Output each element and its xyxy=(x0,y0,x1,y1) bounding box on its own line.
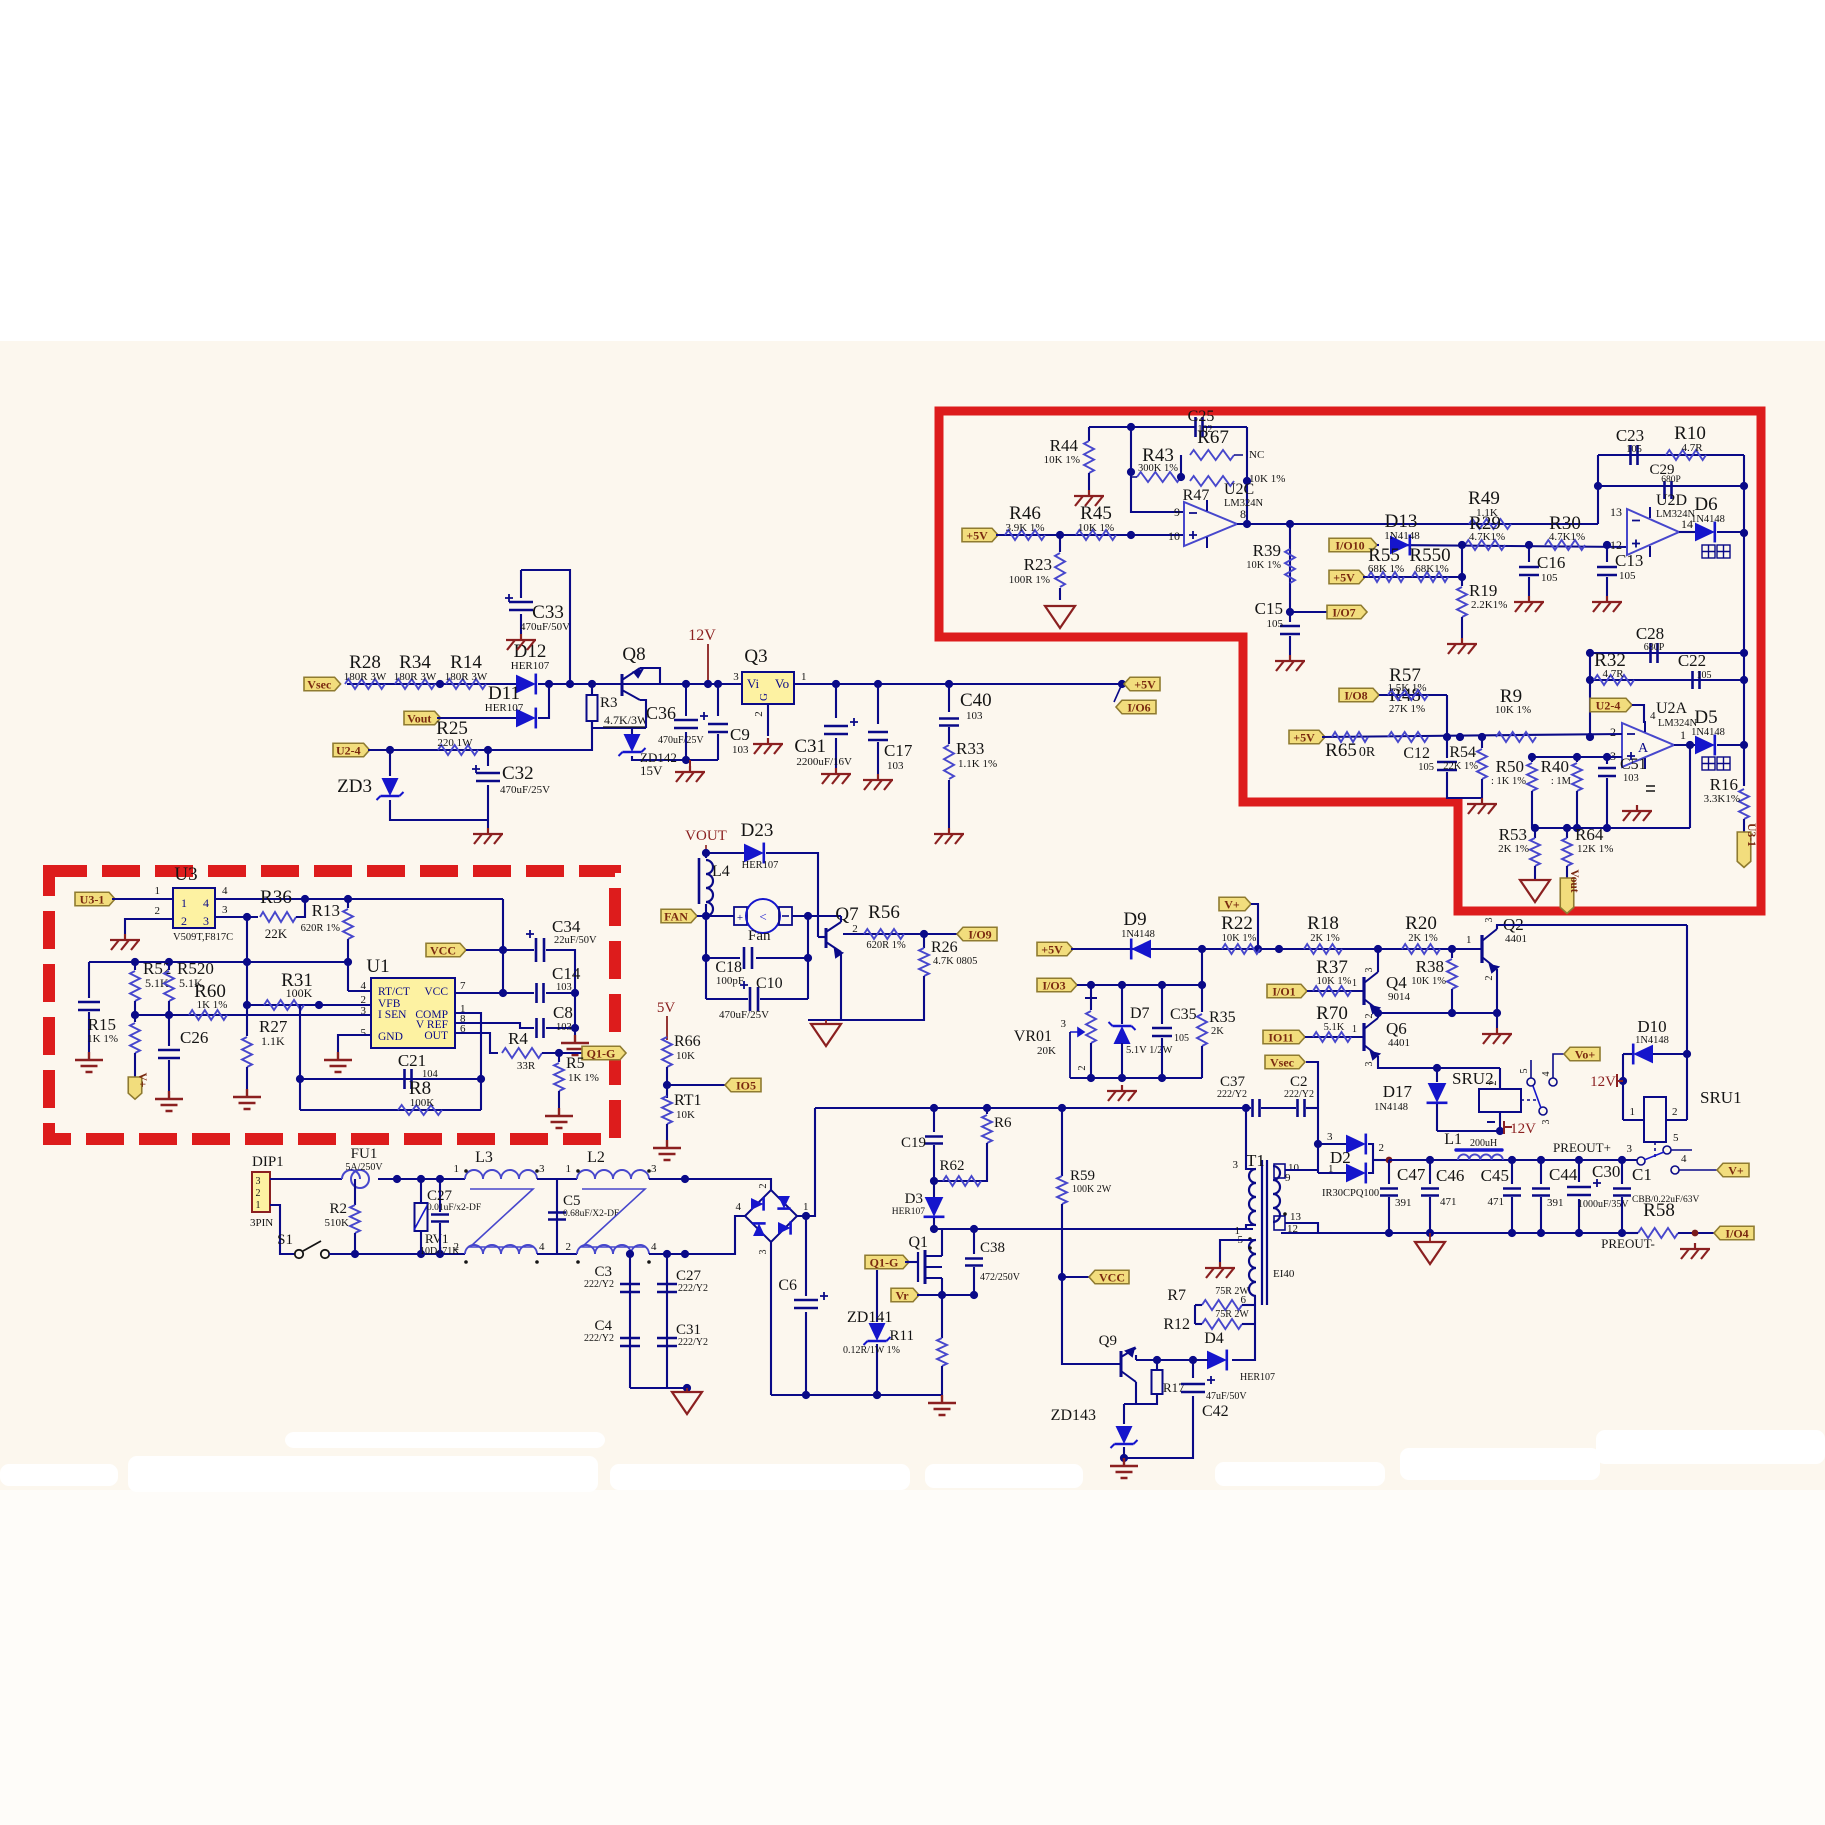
svg-text:R37: R37 xyxy=(1316,957,1348,978)
svg-text:5V: 5V xyxy=(657,1000,676,1016)
svg-text:1: 1 xyxy=(1352,978,1357,989)
svg-text:ZD3: ZD3 xyxy=(337,776,372,797)
svg-text:2K 1%: 2K 1% xyxy=(1408,933,1438,944)
svg-text:U2A: U2A xyxy=(1656,700,1688,717)
svg-text:1N4148: 1N4148 xyxy=(1691,727,1725,738)
svg-text:1N4148: 1N4148 xyxy=(1691,514,1725,525)
svg-text:0.12R/1W 1%: 0.12R/1W 1% xyxy=(843,1345,900,1356)
svg-text:C45: C45 xyxy=(1481,1166,1509,1185)
svg-text:C47: C47 xyxy=(1397,1165,1426,1184)
svg-text:2K 1%: 2K 1% xyxy=(1310,933,1340,944)
svg-text:PREOUT-: PREOUT- xyxy=(1601,1236,1655,1251)
svg-text:C33: C33 xyxy=(532,602,564,623)
svg-text:5: 5 xyxy=(1519,1069,1530,1074)
svg-text:T1: T1 xyxy=(1246,1151,1265,1170)
svg-text:680P: 680P xyxy=(1644,642,1665,653)
svg-text:HER107: HER107 xyxy=(511,660,550,672)
svg-text:+5V: +5V xyxy=(1134,678,1156,692)
svg-text:C10: C10 xyxy=(756,975,783,992)
svg-text:C14: C14 xyxy=(552,964,581,983)
svg-text:27K 1%: 27K 1% xyxy=(1389,703,1425,715)
svg-text:3: 3 xyxy=(1327,1131,1333,1143)
svg-text:HER107: HER107 xyxy=(892,1207,926,1217)
svg-text:391: 391 xyxy=(1547,1197,1564,1209)
svg-text:1K 1%: 1K 1% xyxy=(568,1072,599,1084)
svg-text:EI40: EI40 xyxy=(1273,1268,1295,1280)
svg-text:3.9K 1%: 3.9K 1% xyxy=(1005,522,1044,534)
svg-text:222/Y2: 222/Y2 xyxy=(1284,1089,1314,1100)
svg-text:OUT: OUT xyxy=(424,1030,448,1042)
svg-text:10K 1%: 10K 1% xyxy=(1044,454,1080,466)
svg-text:R23: R23 xyxy=(1024,555,1052,574)
svg-text:R40: R40 xyxy=(1541,757,1569,776)
svg-text:4.7K/3W: 4.7K/3W xyxy=(604,713,649,727)
svg-text:5.1V 1/2W: 5.1V 1/2W xyxy=(1126,1045,1173,1056)
svg-text:9: 9 xyxy=(1174,505,1180,519)
svg-text:105: 105 xyxy=(1626,444,1642,455)
svg-text:D5: D5 xyxy=(1694,707,1717,728)
svg-text:Q1-G: Q1-G xyxy=(870,1256,899,1270)
svg-text:12K 1%: 12K 1% xyxy=(1577,843,1613,855)
svg-text:105: 105 xyxy=(1697,670,1712,681)
svg-text:I/O7: I/O7 xyxy=(1332,606,1355,620)
svg-text:D3: D3 xyxy=(905,1191,923,1207)
svg-text:3: 3 xyxy=(203,914,209,928)
svg-text:4401: 4401 xyxy=(1388,1037,1410,1049)
svg-text:2: 2 xyxy=(1672,1106,1678,1118)
svg-text:300K 1%: 300K 1% xyxy=(1138,463,1178,474)
svg-text:C19: C19 xyxy=(901,1135,926,1151)
svg-text:I/O10: I/O10 xyxy=(1335,539,1364,553)
svg-text:103: 103 xyxy=(732,744,749,756)
svg-text:Vr: Vr xyxy=(895,1289,909,1303)
svg-text:C9: C9 xyxy=(730,725,750,744)
svg-text:1: 1 xyxy=(1630,1106,1636,1118)
svg-text:100K: 100K xyxy=(410,1097,435,1109)
svg-text:VOUT: VOUT xyxy=(685,828,727,844)
svg-text:VCC: VCC xyxy=(430,944,456,958)
svg-text:R14: R14 xyxy=(450,652,482,673)
svg-text:S1: S1 xyxy=(277,1232,293,1248)
svg-text:+5V: +5V xyxy=(1041,943,1063,957)
svg-text:I/O4: I/O4 xyxy=(1725,1227,1748,1241)
svg-text:Q4: Q4 xyxy=(1386,973,1407,992)
svg-text:D10: D10 xyxy=(1637,1017,1666,1036)
svg-text:HER107: HER107 xyxy=(1240,1372,1275,1383)
svg-text:C21: C21 xyxy=(398,1051,426,1070)
svg-text:R62: R62 xyxy=(939,1158,964,1174)
svg-text:105: 105 xyxy=(1418,762,1434,773)
svg-text:0R: 0R xyxy=(1359,745,1376,760)
svg-text:V+: V+ xyxy=(1728,1164,1744,1178)
svg-text:R13: R13 xyxy=(312,901,340,920)
svg-text:680P: 680P xyxy=(1661,475,1681,485)
svg-text:R10: R10 xyxy=(1674,423,1706,444)
svg-text:R64: R64 xyxy=(1575,825,1604,844)
svg-text:2: 2 xyxy=(155,905,161,917)
svg-text:Vsec: Vsec xyxy=(307,678,332,692)
svg-text:R4: R4 xyxy=(508,1029,528,1048)
svg-text:3: 3 xyxy=(539,1163,545,1175)
svg-text:12: 12 xyxy=(1610,538,1622,552)
svg-text:C38: C38 xyxy=(980,1240,1005,1256)
svg-text:C22: C22 xyxy=(1678,651,1706,670)
svg-text:22uF/50V: 22uF/50V xyxy=(554,935,597,946)
svg-text:4: 4 xyxy=(651,1241,657,1253)
svg-text:C40: C40 xyxy=(960,690,992,711)
svg-text:10K 1%: 10K 1% xyxy=(1078,522,1114,534)
svg-text:R25: R25 xyxy=(436,718,468,739)
svg-text:470uF/25V: 470uF/25V xyxy=(658,735,704,746)
svg-text:100pF: 100pF xyxy=(716,975,744,987)
svg-text:5.1K: 5.1K xyxy=(1324,1022,1345,1033)
svg-text:4: 4 xyxy=(1541,1072,1552,1077)
svg-text:1K 1%: 1K 1% xyxy=(87,1033,118,1045)
svg-text:2K 1%: 2K 1% xyxy=(1498,843,1529,855)
svg-text:FU1: FU1 xyxy=(351,1146,378,1162)
svg-text:2200uF/16V: 2200uF/16V xyxy=(796,756,852,768)
svg-text:IO11: IO11 xyxy=(1268,1031,1293,1045)
svg-text:R46: R46 xyxy=(1009,503,1041,524)
svg-text:R53: R53 xyxy=(1499,825,1527,844)
svg-text:620R 1%: 620R 1% xyxy=(301,923,341,934)
svg-text:R47: R47 xyxy=(1183,487,1210,504)
svg-text:103: 103 xyxy=(556,1022,572,1033)
svg-text:2.2K1%: 2.2K1% xyxy=(1471,599,1507,611)
svg-text:U2-4: U2-4 xyxy=(336,744,361,758)
svg-text:Vo: Vo xyxy=(775,676,789,691)
svg-text:R2: R2 xyxy=(329,1201,347,1217)
svg-text:C5: C5 xyxy=(563,1193,581,1209)
svg-text:3PIN: 3PIN xyxy=(250,1217,273,1229)
svg-text:R6: R6 xyxy=(994,1115,1012,1131)
svg-text:103: 103 xyxy=(556,982,572,993)
svg-text:C2: C2 xyxy=(1290,1074,1308,1090)
svg-text:U2-4: U2-4 xyxy=(1596,699,1621,713)
svg-text:V509T,F817C: V509T,F817C xyxy=(173,932,233,943)
svg-text:10K: 10K xyxy=(676,1050,695,1062)
svg-text:4: 4 xyxy=(222,885,228,897)
svg-text:VCC: VCC xyxy=(1099,1271,1125,1285)
svg-text:I/O8: I/O8 xyxy=(1344,689,1367,703)
svg-text:22K 1%: 22K 1% xyxy=(1443,761,1478,772)
svg-text:VR01: VR01 xyxy=(1014,1028,1052,1045)
svg-text:R18: R18 xyxy=(1307,913,1339,934)
svg-text:C31: C31 xyxy=(794,736,826,757)
svg-text:1: 1 xyxy=(1466,934,1472,946)
svg-text:R7: R7 xyxy=(1167,1287,1186,1304)
svg-text:D11: D11 xyxy=(488,683,520,704)
svg-text:1N4148: 1N4148 xyxy=(1121,929,1155,940)
svg-text:1N4148: 1N4148 xyxy=(1374,1102,1408,1113)
svg-text:R50: R50 xyxy=(1496,757,1524,776)
svg-text:D7: D7 xyxy=(1130,1005,1150,1022)
svg-text:R12: R12 xyxy=(1163,1316,1190,1333)
svg-text:R67: R67 xyxy=(1197,427,1229,448)
svg-text:L3: L3 xyxy=(475,1149,493,1166)
svg-text:C4: C4 xyxy=(594,1318,612,1334)
svg-text:: 1M: : 1M xyxy=(1551,776,1572,787)
svg-text:2: 2 xyxy=(566,1241,572,1253)
svg-text:R5: R5 xyxy=(566,1055,585,1072)
svg-text:220 1W: 220 1W xyxy=(437,737,473,749)
svg-text:2K: 2K xyxy=(1211,1026,1224,1037)
svg-text:Fan: Fan xyxy=(748,928,771,944)
svg-text:Vout: Vout xyxy=(1568,869,1580,892)
svg-text:C32: C32 xyxy=(502,763,534,784)
svg-text:C12: C12 xyxy=(1403,745,1430,762)
svg-text:R59: R59 xyxy=(1070,1168,1095,1184)
svg-text:G: G xyxy=(758,693,770,701)
svg-text:1: 1 xyxy=(801,671,807,683)
svg-text:R36: R36 xyxy=(260,887,292,908)
svg-text:2: 2 xyxy=(1364,1014,1375,1019)
svg-text:0.01uF/x2-DF: 0.01uF/x2-DF xyxy=(427,1203,481,1213)
svg-text:Vi: Vi xyxy=(747,676,760,691)
svg-text:C37: C37 xyxy=(1220,1074,1246,1090)
svg-text:C15: C15 xyxy=(1255,599,1283,618)
svg-text:1: 1 xyxy=(454,1163,460,1175)
svg-text:Q9: Q9 xyxy=(1099,1333,1117,1349)
svg-text:100R 1%: 100R 1% xyxy=(1009,574,1050,586)
svg-text:V+: V+ xyxy=(1224,898,1240,912)
svg-text:A: A xyxy=(1638,741,1649,756)
svg-text:3: 3 xyxy=(651,1163,657,1175)
svg-text:GND: GND xyxy=(378,1031,403,1043)
svg-text:472/250V: 472/250V xyxy=(980,1272,1021,1283)
svg-text:105: 105 xyxy=(1619,570,1636,582)
svg-text:RT1: RT1 xyxy=(674,1092,701,1109)
svg-text:C44: C44 xyxy=(1549,1165,1578,1184)
svg-text:1: 1 xyxy=(803,1201,809,1213)
svg-text:1.5K 1%: 1.5K 1% xyxy=(1387,682,1426,694)
svg-text:Q7: Q7 xyxy=(835,904,858,925)
svg-text:ZD143: ZD143 xyxy=(1051,1407,1096,1424)
svg-text:0.68uF/X2-DF: 0.68uF/X2-DF xyxy=(563,1209,619,1219)
svg-text:10K 1%: 10K 1% xyxy=(1411,976,1446,987)
svg-text:222/Y2: 222/Y2 xyxy=(678,1283,708,1294)
svg-text:4: 4 xyxy=(1681,1153,1687,1165)
svg-text:C51: C51 xyxy=(1620,756,1647,773)
svg-text:R70: R70 xyxy=(1316,1003,1348,1024)
svg-text:2: 2 xyxy=(256,1188,261,1199)
svg-text:3: 3 xyxy=(1364,1062,1375,1067)
svg-text:1.1K: 1.1K xyxy=(261,1034,285,1048)
svg-text:R58: R58 xyxy=(1643,1200,1675,1221)
svg-text:3: 3 xyxy=(758,1250,769,1255)
svg-text:1.1K 1%: 1.1K 1% xyxy=(958,758,997,770)
svg-text:75R 2W: 75R 2W xyxy=(1215,1309,1249,1320)
svg-text:103: 103 xyxy=(966,710,983,722)
svg-text:9: 9 xyxy=(1285,1172,1291,1184)
svg-text:C18: C18 xyxy=(715,959,742,976)
svg-text:C36: C36 xyxy=(646,703,676,723)
svg-text:391: 391 xyxy=(1395,1197,1412,1209)
svg-text:D9: D9 xyxy=(1123,909,1146,930)
svg-text:DIP1: DIP1 xyxy=(252,1154,284,1170)
svg-text:4.7K 0805: 4.7K 0805 xyxy=(933,956,977,967)
svg-text:R16: R16 xyxy=(1710,775,1738,794)
svg-text:R11: R11 xyxy=(890,1328,914,1344)
svg-text:8: 8 xyxy=(1240,507,1246,521)
svg-text:222/Y2: 222/Y2 xyxy=(1217,1089,1247,1100)
svg-text:ZD141: ZD141 xyxy=(847,1309,892,1326)
svg-text:105: 105 xyxy=(1541,572,1558,584)
svg-text:U3-1: U3-1 xyxy=(80,893,105,907)
svg-text:22K: 22K xyxy=(265,926,288,941)
svg-text:1: 1 xyxy=(181,896,187,910)
svg-text:I/O1: I/O1 xyxy=(1272,985,1295,999)
svg-text:L4: L4 xyxy=(712,863,730,880)
svg-text:V+: V+ xyxy=(136,1073,148,1088)
svg-text:100K 2W: 100K 2W xyxy=(1072,1184,1112,1195)
svg-text:4401: 4401 xyxy=(1505,933,1527,945)
svg-text:R65: R65 xyxy=(1325,740,1357,761)
svg-text:: 1K 1%: : 1K 1% xyxy=(1491,776,1526,787)
svg-text:1: 1 xyxy=(256,1200,261,1211)
svg-text:IO5: IO5 xyxy=(736,1079,756,1093)
svg-text:Q1: Q1 xyxy=(908,1234,928,1251)
svg-text:L2: L2 xyxy=(587,1149,605,1166)
svg-text:Q6: Q6 xyxy=(1386,1019,1407,1038)
svg-text:1: 1 xyxy=(1352,1024,1357,1035)
svg-text:7: 7 xyxy=(460,980,466,992)
svg-text:3: 3 xyxy=(1541,1120,1552,1125)
svg-text:C27: C27 xyxy=(676,1268,702,1284)
svg-text:222/Y2: 222/Y2 xyxy=(584,1279,614,1290)
svg-text:105: 105 xyxy=(1267,618,1284,630)
svg-text:Q1-G: Q1-G xyxy=(587,1047,616,1061)
svg-text:I/O9: I/O9 xyxy=(968,928,991,942)
svg-text:180R 3W: 180R 3W xyxy=(344,671,387,683)
svg-text:HER107: HER107 xyxy=(742,860,779,871)
svg-text:I SEN: I SEN xyxy=(378,1009,407,1021)
svg-text:1: 1 xyxy=(566,1163,572,1175)
svg-text:R22: R22 xyxy=(1221,913,1253,934)
svg-text:3: 3 xyxy=(733,671,739,683)
svg-text:C27: C27 xyxy=(427,1188,453,1204)
svg-text:10: 10 xyxy=(1168,529,1180,543)
svg-text:C16: C16 xyxy=(1537,553,1565,572)
svg-text:R3: R3 xyxy=(600,695,618,711)
svg-text:470uF/50V: 470uF/50V xyxy=(520,621,570,633)
svg-text:+5V: +5V xyxy=(1333,571,1355,585)
svg-text:105: 105 xyxy=(1174,1033,1189,1044)
svg-text:2: 2 xyxy=(181,914,187,928)
svg-text:2: 2 xyxy=(454,1241,460,1253)
svg-text:1N4148: 1N4148 xyxy=(1384,530,1420,542)
svg-text:I/O6: I/O6 xyxy=(1127,701,1150,715)
svg-text:I/O3: I/O3 xyxy=(1042,979,1065,993)
svg-text:2: 2 xyxy=(1379,1142,1385,1154)
svg-text:2: 2 xyxy=(1488,1081,1499,1086)
svg-text:68K1%: 68K1% xyxy=(1415,563,1449,575)
svg-text:200uH: 200uH xyxy=(1470,1138,1497,1149)
svg-text:3: 3 xyxy=(1233,1159,1239,1171)
svg-text:1N4148: 1N4148 xyxy=(1635,1035,1669,1046)
svg-text:620R 1%: 620R 1% xyxy=(866,940,906,951)
svg-text:D13: D13 xyxy=(1385,511,1418,532)
svg-text:15V: 15V xyxy=(640,763,663,778)
svg-text:RT/CT: RT/CT xyxy=(378,986,410,998)
svg-text:C28: C28 xyxy=(1636,624,1664,643)
svg-text:+5V: +5V xyxy=(966,529,988,543)
svg-text:2: 2 xyxy=(758,1184,769,1189)
svg-text:R34: R34 xyxy=(399,652,431,673)
svg-text:R26: R26 xyxy=(931,939,958,956)
svg-text:3: 3 xyxy=(256,1176,261,1187)
svg-text:3: 3 xyxy=(1061,1018,1067,1030)
svg-text:9014: 9014 xyxy=(1388,991,1411,1003)
svg-text:470uF/25V: 470uF/25V xyxy=(719,1009,769,1021)
svg-text:R44: R44 xyxy=(1050,436,1079,455)
svg-text:C46: C46 xyxy=(1436,1166,1464,1185)
svg-text:5: 5 xyxy=(361,1027,367,1039)
svg-text:C31: C31 xyxy=(676,1322,701,1338)
svg-text:Vout: Vout xyxy=(407,712,431,726)
svg-text:C3: C3 xyxy=(594,1264,612,1280)
svg-text:10K 1%: 10K 1% xyxy=(1249,473,1285,485)
svg-text:U2D: U2D xyxy=(1656,492,1687,509)
svg-text:Q8: Q8 xyxy=(622,644,645,665)
svg-text:C8: C8 xyxy=(553,1003,573,1022)
svg-text:+5V: +5V xyxy=(1293,731,1315,745)
svg-text:68K 1%: 68K 1% xyxy=(1368,563,1404,575)
svg-text:C17: C17 xyxy=(884,741,913,760)
svg-text:1: 1 xyxy=(155,885,161,897)
svg-text:3: 3 xyxy=(1484,918,1495,923)
svg-text:3: 3 xyxy=(1364,968,1375,973)
svg-text:C30: C30 xyxy=(1592,1162,1620,1181)
svg-text:C23: C23 xyxy=(1616,426,1644,445)
svg-text:R49: R49 xyxy=(1468,488,1500,509)
svg-text:C42: C42 xyxy=(1202,1403,1229,1420)
svg-text:R35: R35 xyxy=(1209,1009,1236,1026)
svg-text:D23: D23 xyxy=(741,820,774,841)
svg-text:180R 3W: 180R 3W xyxy=(445,671,488,683)
svg-text:Vo+: Vo+ xyxy=(1575,1048,1596,1062)
svg-text:2: 2 xyxy=(753,711,765,717)
svg-text:4: 4 xyxy=(539,1241,545,1253)
svg-text:222/Y2: 222/Y2 xyxy=(584,1333,614,1344)
svg-text:471: 471 xyxy=(1488,1196,1505,1208)
svg-text:2: 2 xyxy=(1610,725,1616,739)
svg-text:4: 4 xyxy=(203,896,209,910)
svg-text:20K: 20K xyxy=(1037,1045,1056,1057)
svg-text:U3-1: U3-1 xyxy=(1745,823,1757,847)
svg-text:U1: U1 xyxy=(366,956,389,977)
svg-text:3.3K1%: 3.3K1% xyxy=(1704,793,1740,805)
svg-text:2: 2 xyxy=(1484,976,1495,981)
svg-text:222/Y2: 222/Y2 xyxy=(678,1337,708,1348)
svg-text:33R: 33R xyxy=(517,1060,536,1072)
svg-text:D4: D4 xyxy=(1204,1330,1224,1347)
svg-text:VCC: VCC xyxy=(424,986,448,998)
svg-text:10K: 10K xyxy=(676,1109,695,1121)
svg-text:D17: D17 xyxy=(1383,1082,1413,1101)
svg-text:510K: 510K xyxy=(325,1217,350,1229)
svg-text:+: + xyxy=(737,912,743,924)
svg-text:R28: R28 xyxy=(349,652,381,673)
svg-text:471: 471 xyxy=(1440,1196,1457,1208)
svg-text:Q3: Q3 xyxy=(744,646,767,667)
svg-text:R15: R15 xyxy=(88,1015,116,1034)
svg-text:2: 2 xyxy=(1077,1066,1088,1071)
svg-text:R20: R20 xyxy=(1405,913,1437,934)
svg-text:<: < xyxy=(759,909,766,924)
svg-text:1K 1%: 1K 1% xyxy=(197,999,228,1011)
svg-text:4.7R: 4.7R xyxy=(1602,668,1624,680)
